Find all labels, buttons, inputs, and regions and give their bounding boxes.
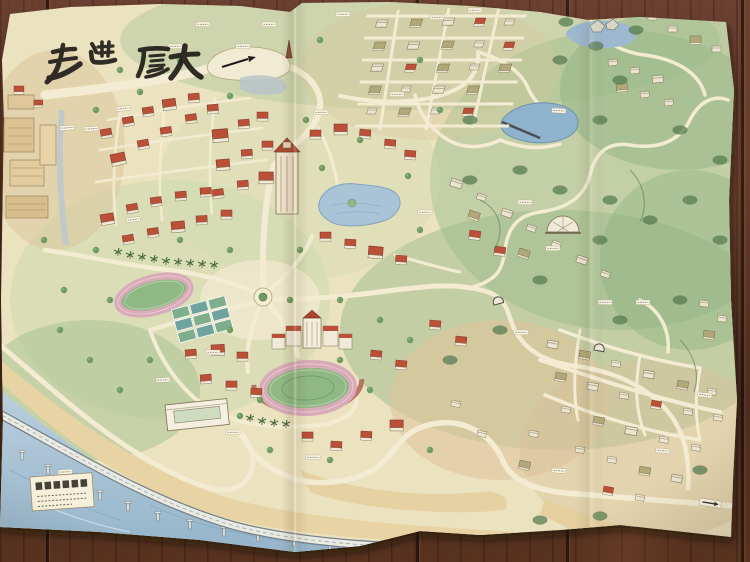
fold-creases — [0, 0, 750, 562]
campus-map-artwork — [0, 0, 750, 562]
photo-of-campus-map: 走进厦大 — [0, 0, 750, 562]
